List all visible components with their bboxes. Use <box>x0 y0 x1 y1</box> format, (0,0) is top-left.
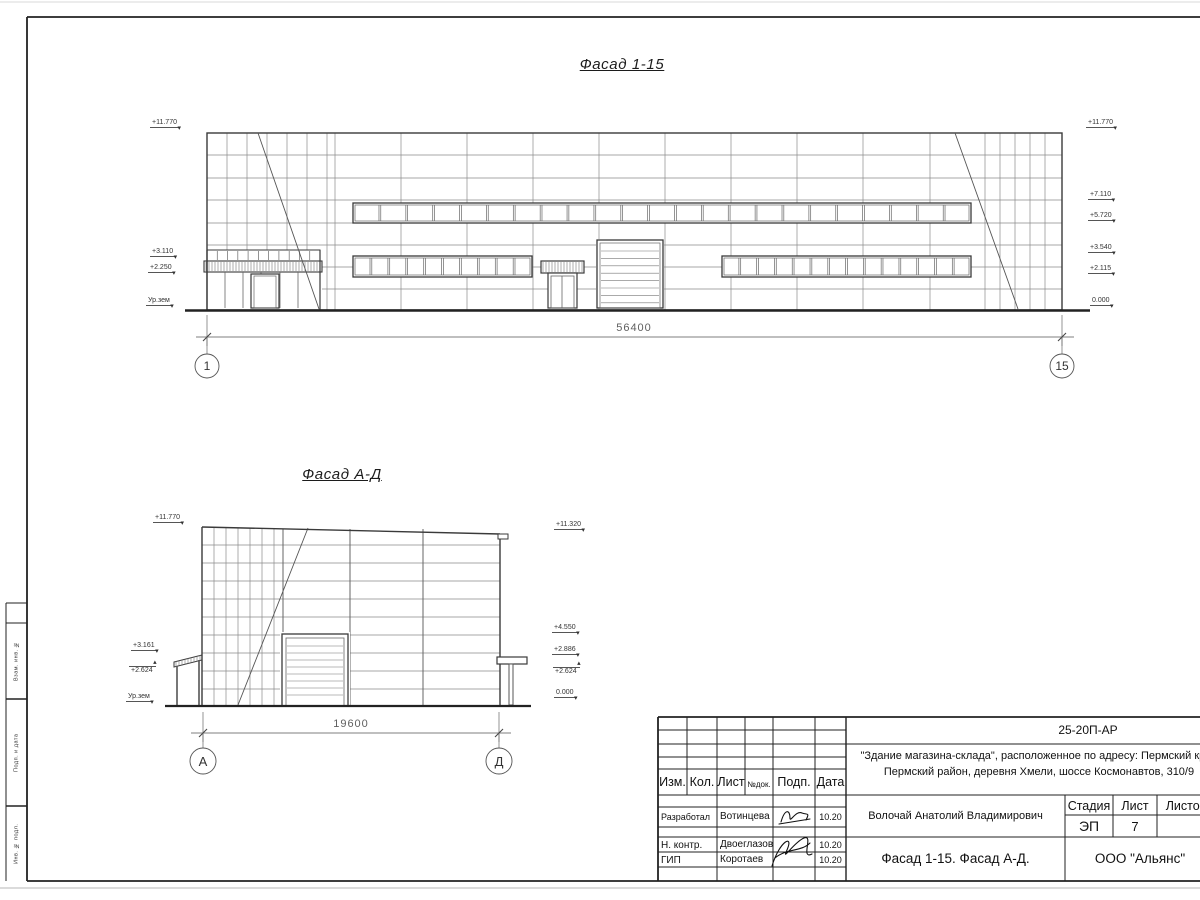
elevation-mark: +2.624▴ <box>553 667 580 676</box>
role-razrabotal: Разработал <box>661 812 710 822</box>
drawing-linework <box>0 0 1200 900</box>
side-stamp-label: Взам. инв. № <box>7 623 26 699</box>
elevation-mark: +11.770▾ <box>153 514 183 523</box>
elevation-mark: +7.110▾ <box>1088 191 1114 200</box>
elevation-mark: +5.720▾ <box>1088 212 1115 221</box>
sheet-number: 7 <box>1113 819 1157 834</box>
elevation-mark: +3.110▾ <box>150 248 176 257</box>
date-gip: 10.20 <box>815 855 846 865</box>
elevation-mark: +3.161▾ <box>131 642 158 651</box>
company-name: ООО "Альянс" <box>1065 851 1200 866</box>
project-address-line2: Пермский район, деревня Хмели, шоссе Кос… <box>846 766 1200 778</box>
col-header-list: Лист <box>717 775 745 789</box>
elevation-mark: +11.770▾ <box>150 119 180 128</box>
date-nkontr: 10.20 <box>815 840 846 850</box>
name-korotaev: Коротаев <box>720 854 763 865</box>
drawing-sheet: Фасад 1-15 Фасад А-Д 56400 19600 1 15 А … <box>0 0 1200 900</box>
elevation-mark: 0.000▾ <box>554 689 577 698</box>
project-code: 25-20П-АР <box>846 723 1200 737</box>
facade-1-15-title: Фасад 1-15 <box>532 56 712 73</box>
col-header-izm: Изм. <box>658 775 687 789</box>
name-dvoeglazov: Двоеглазов <box>720 839 773 850</box>
sheet-label: Лист <box>1113 799 1157 813</box>
col-header-data: Дата <box>815 775 846 789</box>
doc-title: Фасад 1-15. Фасад А-Д. <box>846 851 1065 866</box>
axis-label-d: Д <box>486 754 512 769</box>
name-votintseva: Вотинцева <box>720 811 770 822</box>
col-header-ndok: №док. <box>745 780 773 789</box>
date-razrabotal: 10.20 <box>815 812 846 822</box>
axis-label-15: 15 <box>1050 359 1074 373</box>
elevation-mark: +11.320▾ <box>554 521 584 530</box>
elevation-mark: 0.000▾ <box>1090 297 1113 306</box>
side-stamp-label: Подп. и дата <box>7 699 26 806</box>
elevation-mark: +4.550▾ <box>552 624 579 633</box>
dimension-56400: 56400 <box>584 322 684 334</box>
stage-label: Стадия <box>1065 799 1113 813</box>
elevation-mark: Ур.зем▾ <box>146 297 173 306</box>
col-header-podp: Подп. <box>773 775 815 789</box>
side-stamp-label: Инв. № подл. <box>7 806 26 881</box>
elevation-mark: Ур.зем▾ <box>126 693 153 702</box>
elevation-mark: +2.250▾ <box>148 264 175 273</box>
stage-value: ЭП <box>1065 818 1113 834</box>
facade-a-d-title: Фасад А-Д <box>262 466 422 483</box>
elevation-mark: +2.624▴ <box>129 666 156 675</box>
col-header-kol: Кол. <box>687 775 717 789</box>
project-address-line1: "Здание магазина-склада", расположенное … <box>846 750 1200 762</box>
axis-label-a: А <box>190 754 216 769</box>
elevation-mark: +2.886▾ <box>552 646 579 655</box>
dimension-19600: 19600 <box>301 718 401 730</box>
axis-label-1: 1 <box>195 359 219 373</box>
elevation-mark: +11.770▾ <box>1086 119 1116 128</box>
role-gip: ГИП <box>661 855 681 866</box>
elevation-mark: +3.540▾ <box>1088 244 1115 253</box>
role-nkontr: Н. контр. <box>661 840 702 851</box>
chief-name: Волочай Анатолий Владимирович <box>846 810 1065 822</box>
elevation-mark: +2.115▾ <box>1088 265 1114 274</box>
sheets-label: Листов <box>1157 799 1200 813</box>
